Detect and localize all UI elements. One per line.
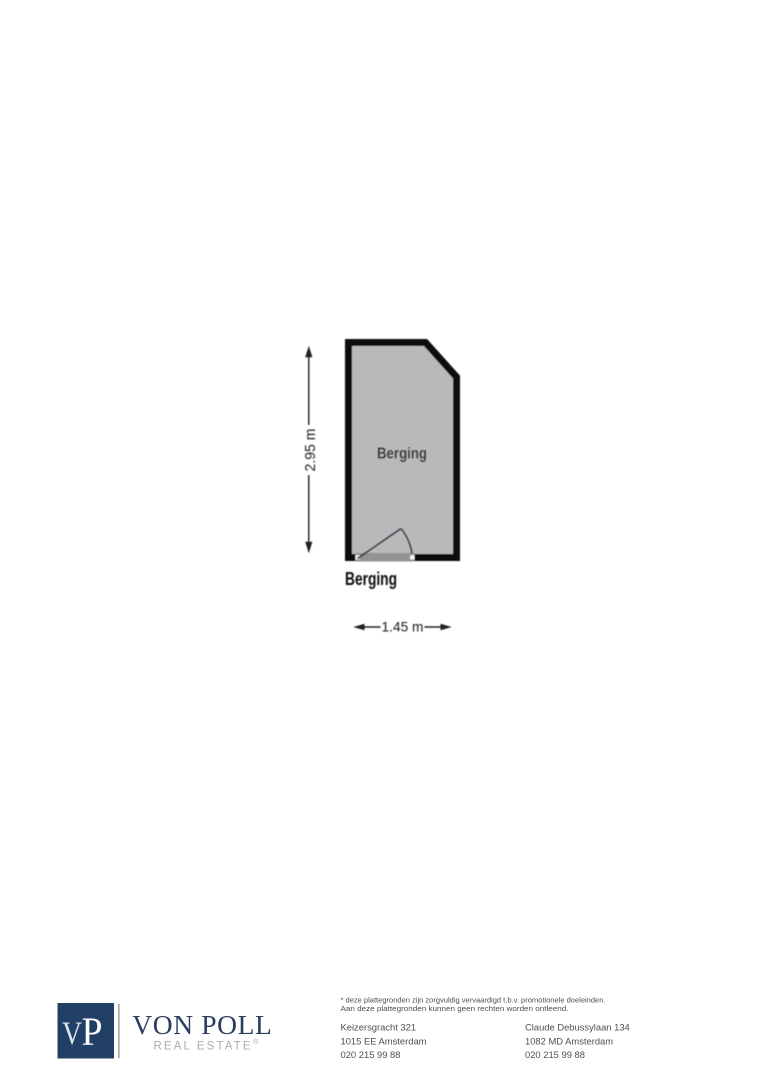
svg-text:020 215 99 88: 020 215 99 88: [525, 1049, 585, 1060]
svg-text:Berging: Berging: [345, 568, 397, 589]
svg-text:020 215 99 88: 020 215 99 88: [341, 1049, 401, 1060]
svg-text:P: P: [82, 1009, 103, 1054]
svg-text:V: V: [62, 1016, 82, 1052]
svg-text:VON POLL: VON POLL: [132, 1009, 271, 1040]
svg-text:Keizersgracht 321: Keizersgracht 321: [341, 1021, 417, 1032]
svg-text:Berging: Berging: [377, 446, 427, 463]
svg-text:1.45 m: 1.45 m: [382, 619, 424, 635]
svg-text:2.95 m: 2.95 m: [303, 429, 319, 472]
svg-text:1082 MD Amsterdam: 1082 MD Amsterdam: [525, 1036, 613, 1047]
svg-text:REAL ESTATE: REAL ESTATE: [154, 1041, 251, 1053]
svg-text:Aan deze plattegronden kunnen: Aan deze plattegronden kunnen geen recht…: [341, 1004, 569, 1013]
svg-text:Claude Debussylaan 134: Claude Debussylaan 134: [525, 1021, 630, 1032]
svg-text:1015 EE Amsterdam: 1015 EE Amsterdam: [341, 1036, 427, 1047]
svg-text:®: ®: [253, 1037, 259, 1046]
